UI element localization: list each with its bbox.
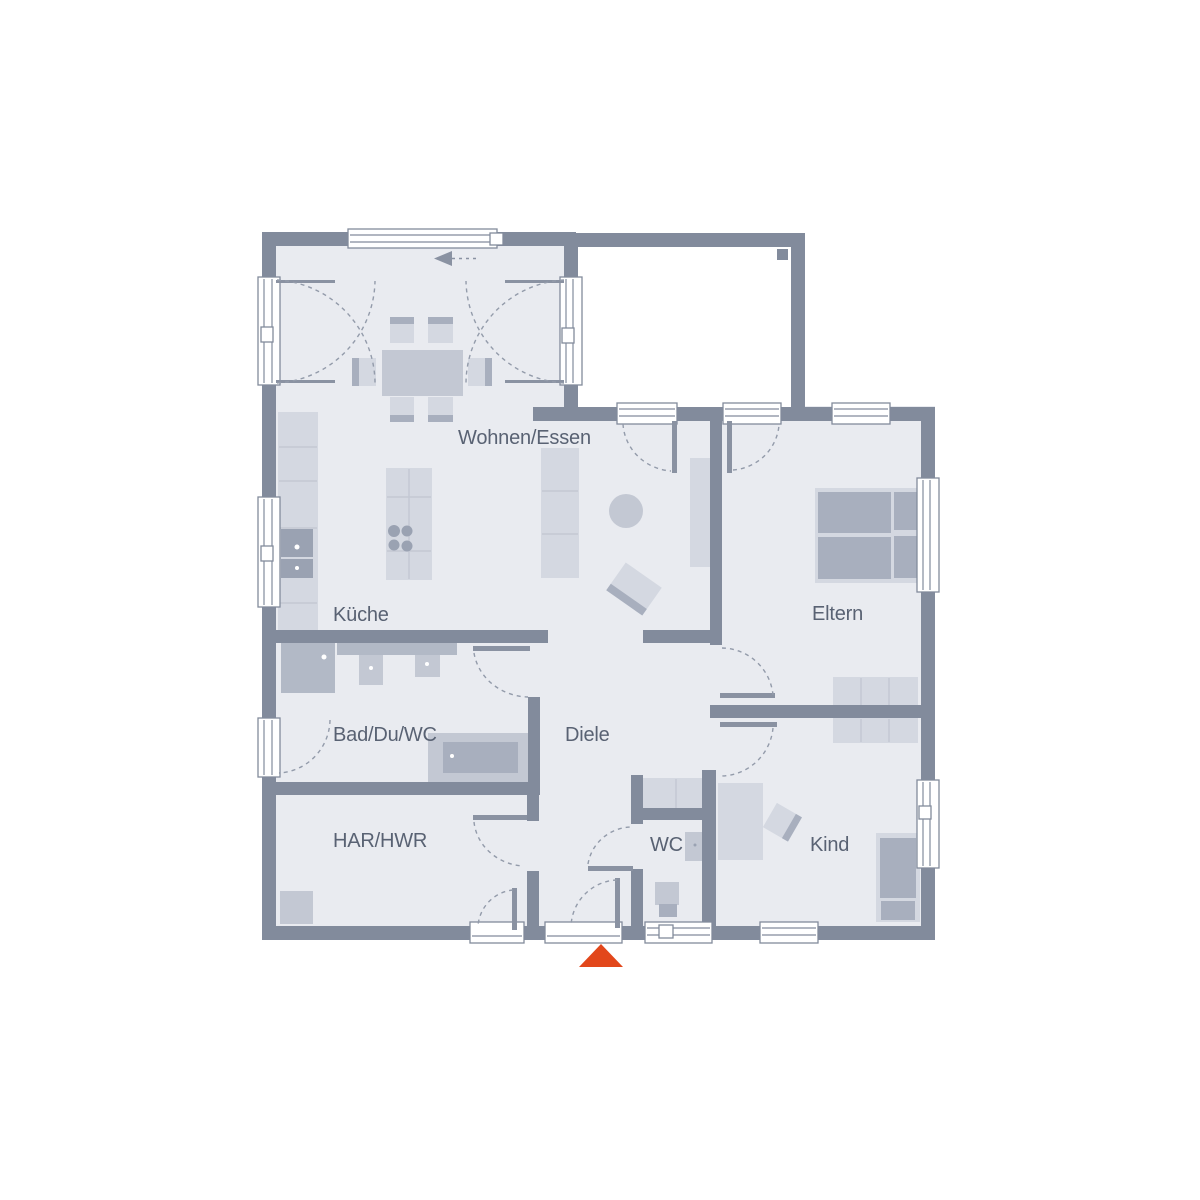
- child-window-south: [760, 922, 818, 943]
- child-window-east: [917, 780, 939, 868]
- room-label-kueche: Küche: [333, 604, 389, 626]
- child-wardrobe: [833, 718, 918, 743]
- kitchen-counter: [278, 412, 318, 630]
- child-door-leaf: [720, 722, 777, 727]
- shower: [281, 643, 335, 693]
- terrace-wall-top: [564, 233, 805, 247]
- room-label-kind: Kind: [810, 834, 849, 856]
- sofa: [541, 448, 579, 578]
- parents-window-north: [832, 403, 890, 424]
- parents-window-east: [917, 478, 939, 592]
- kitchen-island: [386, 468, 432, 580]
- utility-door-leaf: [473, 815, 527, 820]
- side-table: [609, 494, 643, 528]
- entrance-arrow: [579, 944, 623, 967]
- room-label-eltern: Eltern: [812, 603, 863, 625]
- front-door: [545, 922, 622, 943]
- tv-sideboard: [690, 458, 713, 567]
- bathtub: [443, 742, 518, 773]
- hall-dresser: [643, 778, 710, 809]
- room-label-diele: Diele: [565, 724, 610, 746]
- dining-table: [382, 350, 463, 396]
- wc-door-leaf: [588, 866, 633, 871]
- terrace-floor: [578, 247, 791, 407]
- terrace-wall-right: [791, 233, 805, 421]
- kitchen-window-west: [258, 497, 280, 607]
- room-label-wc: WC: [650, 834, 683, 856]
- child-bed: [876, 833, 920, 922]
- toilet-bowl: [655, 882, 679, 905]
- wall-kitchen-bath: [276, 630, 548, 643]
- washing-machine: [280, 891, 313, 924]
- bath-window-west: [258, 718, 280, 777]
- toilet-tank: [659, 904, 677, 917]
- room-label-bad-du-wc: Bad/Du/WC: [333, 724, 437, 746]
- parents-wardrobe: [833, 677, 918, 707]
- child-desk: [718, 783, 763, 860]
- floor-plan: Wohnen/Essen Küche Eltern Bad/Du/WC Diel…: [0, 0, 1200, 1200]
- parents-door-leaf: [720, 693, 775, 698]
- wall-wc-east: [702, 770, 716, 926]
- utility-exit-leaf: [512, 888, 517, 930]
- sliding-window-north: [348, 229, 503, 248]
- wall-hall-parents: [710, 421, 722, 645]
- french-door-west: [258, 277, 280, 385]
- wall-bath-utility: [262, 782, 540, 795]
- bath-door-leaf: [473, 646, 530, 651]
- room-label-wohnen-essen: Wohnen/Essen: [458, 427, 591, 449]
- wall-living-hall: [643, 630, 722, 643]
- wc-basin: [685, 832, 704, 861]
- vanity-counter: [337, 641, 457, 655]
- sink-2: [415, 655, 440, 677]
- wall-parents-child: [710, 705, 933, 718]
- terrace-parents-leaf: [727, 421, 732, 473]
- terrace-hall-leaf: [672, 421, 677, 473]
- terrace-post: [777, 249, 788, 260]
- front-door-leaf: [615, 878, 620, 928]
- french-door-terrace: [560, 277, 582, 385]
- parents-bed: [815, 488, 920, 583]
- wc-window-south: [645, 922, 712, 943]
- terrace-door-parents: [723, 403, 781, 424]
- oven: [281, 529, 313, 557]
- floor-plan-page: Wohnen/Essen Küche Eltern Bad/Du/WC Diel…: [0, 0, 1200, 1200]
- terrace-door-hall: [617, 403, 677, 424]
- room-label-har-hwr: HAR/HWR: [333, 830, 427, 852]
